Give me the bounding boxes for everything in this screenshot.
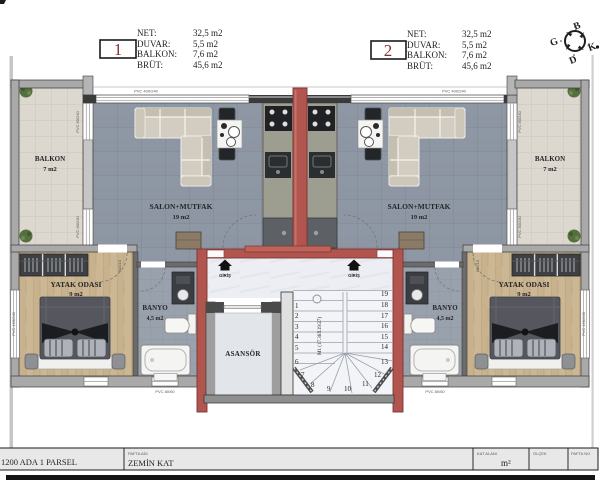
svg-text:PVC 80/240: PVC 80/240 [75, 110, 80, 132]
svg-text:90/210: 90/210 [117, 259, 122, 272]
svg-text:7 m2: 7 m2 [543, 166, 557, 173]
svg-text:4,5 m2: 4,5 m2 [147, 316, 164, 322]
svg-text:45,6 m2: 45,6 m2 [462, 61, 492, 71]
svg-text:SALON+MUTFAK: SALON+MUTFAK [388, 202, 451, 211]
svg-text:NET:: NET: [137, 28, 157, 38]
svg-text:5,5 m2: 5,5 m2 [462, 40, 487, 50]
svg-text:2: 2 [384, 41, 393, 60]
svg-text:BRÜT:: BRÜT: [407, 61, 433, 71]
svg-text:BALKON: BALKON [535, 155, 565, 163]
svg-text:19 m2: 19 m2 [173, 214, 190, 221]
svg-text:45,6 m2: 45,6 m2 [193, 60, 223, 70]
svg-text:BANYO: BANYO [142, 304, 168, 312]
svg-text:PVC 80/240: PVC 80/240 [75, 215, 80, 237]
svg-text:ZEMİN KAT: ZEMİN KAT [128, 458, 174, 468]
svg-text:7 m2: 7 m2 [43, 166, 57, 173]
svg-text:PVC 160/240: PVC 160/240 [11, 311, 16, 336]
svg-text:5: 5 [295, 344, 299, 352]
svg-text:PVC 80/60: PVC 80/60 [155, 389, 175, 394]
svg-text:19 m2: 19 m2 [411, 214, 428, 221]
svg-text:DUVAR:: DUVAR: [137, 39, 170, 49]
svg-text:5,5 m2: 5,5 m2 [193, 39, 218, 49]
svg-text:PVC 80/60: PVC 80/60 [425, 389, 445, 394]
svg-text:SALON+MUTFAK: SALON+MUTFAK [150, 202, 213, 211]
svg-text:7,6 m2: 7,6 m2 [462, 50, 487, 60]
svg-text:6: 6 [295, 358, 299, 366]
svg-text:M1 (17.36X19/27): M1 (17.36X19/27) [318, 317, 323, 355]
svg-text:YATAK ODASI: YATAK ODASI [499, 280, 550, 289]
svg-text:16: 16 [381, 322, 389, 330]
svg-text:PAFTA ADI: PAFTA ADI [128, 451, 148, 456]
svg-text:4: 4 [295, 333, 299, 341]
svg-text:32,5 m2: 32,5 m2 [462, 29, 492, 39]
svg-text:PAFTA NO: PAFTA NO [571, 451, 590, 456]
svg-text:ÖLÇEK: ÖLÇEK [533, 451, 547, 456]
svg-text:PVC 160/240: PVC 160/240 [581, 311, 586, 336]
svg-text:8: 8 [311, 381, 315, 389]
svg-text:9: 9 [327, 385, 331, 393]
svg-text:BANYO: BANYO [432, 304, 458, 312]
svg-text:11: 11 [362, 380, 369, 388]
svg-text:1: 1 [114, 40, 123, 59]
svg-text:15: 15 [381, 333, 389, 341]
svg-text:14: 14 [381, 343, 389, 351]
svg-text:PVC 400/240: PVC 400/240 [442, 89, 467, 94]
svg-text:ASANSÖR: ASANSÖR [225, 350, 261, 358]
svg-text:BALKON:: BALKON: [137, 49, 177, 59]
svg-text:GİRİŞ: GİRİŞ [348, 273, 360, 278]
svg-text:m²: m² [501, 458, 511, 468]
svg-text:YATAK ODASI: YATAK ODASI [51, 280, 102, 289]
svg-text:1200 ADA 1 PARSEL: 1200 ADA 1 PARSEL [1, 457, 77, 467]
svg-text:13: 13 [381, 358, 389, 366]
svg-text:4,5 m2: 4,5 m2 [437, 316, 454, 322]
svg-text:PVC 400/240: PVC 400/240 [134, 89, 159, 94]
svg-text:19: 19 [381, 290, 389, 298]
svg-text:DUVAR:: DUVAR: [407, 40, 440, 50]
svg-text:BALKON: BALKON [35, 155, 65, 163]
svg-text:3: 3 [295, 323, 299, 331]
svg-text:32,5 m2: 32,5 m2 [193, 28, 223, 38]
svg-text:1: 1 [295, 302, 299, 310]
svg-text:18: 18 [381, 301, 389, 309]
svg-text:NET:: NET: [407, 29, 427, 39]
svg-text:GİRİŞ: GİRİŞ [219, 273, 231, 278]
svg-text:7: 7 [301, 371, 305, 379]
svg-text:BRÜT:: BRÜT: [137, 60, 163, 70]
svg-text:PVC 80/240: PVC 80/240 [517, 110, 522, 132]
svg-text:12: 12 [374, 371, 382, 379]
svg-text:KAT ALANI: KAT ALANI [477, 451, 497, 456]
svg-text:BALKON:: BALKON: [407, 50, 447, 60]
svg-text:PVC 80/240: PVC 80/240 [517, 215, 522, 237]
svg-text:90/210: 90/210 [475, 259, 480, 272]
svg-text:7,6 m2: 7,6 m2 [193, 49, 218, 59]
svg-text:17: 17 [381, 312, 389, 320]
svg-text:2: 2 [295, 312, 299, 320]
svg-text:10: 10 [344, 385, 352, 393]
